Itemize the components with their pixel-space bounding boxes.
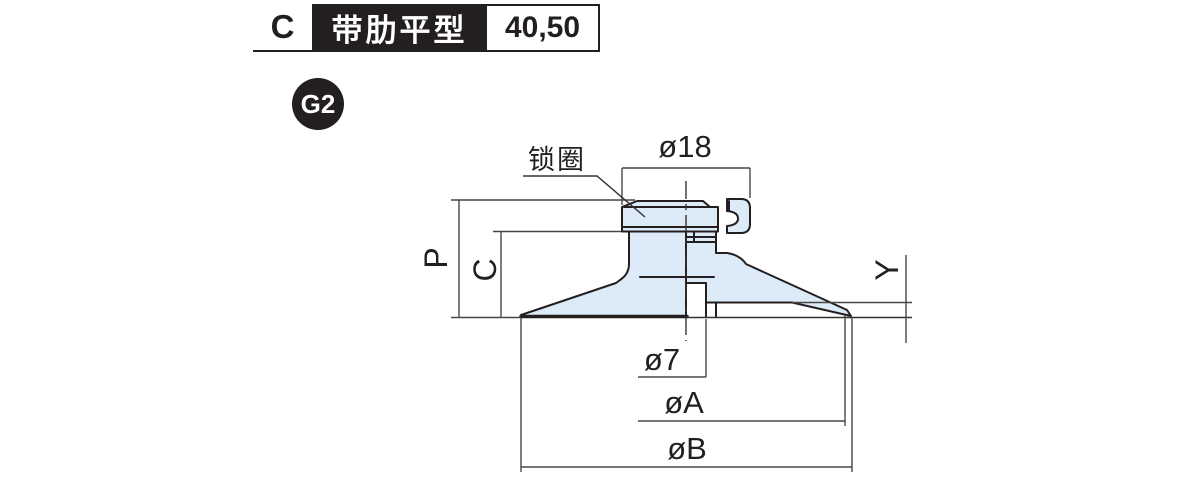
dim-label-dB: øB bbox=[667, 431, 707, 466]
dim-label-y: Y bbox=[869, 259, 905, 280]
lock-ring-label: 锁圈 bbox=[528, 145, 586, 175]
dim-label-d7: ø7 bbox=[644, 342, 680, 377]
catalog-page: C 带肋平型 40,50 G2 bbox=[0, 0, 1200, 500]
suction-cup-side-view bbox=[521, 232, 686, 318]
dim-label-d18: ø18 bbox=[658, 129, 711, 164]
dim-label-c: C bbox=[467, 258, 503, 281]
lock-ring-clip bbox=[727, 199, 750, 233]
suction-cup-technical-drawing: 锁圈 ø18 P C Y ø7 øA øB bbox=[0, 0, 1200, 500]
suction-cup-section-view bbox=[686, 232, 851, 317]
dim-label-dA: øA bbox=[664, 385, 704, 420]
bore-boss-lines bbox=[706, 303, 716, 318]
dim-label-p: P bbox=[418, 247, 454, 268]
